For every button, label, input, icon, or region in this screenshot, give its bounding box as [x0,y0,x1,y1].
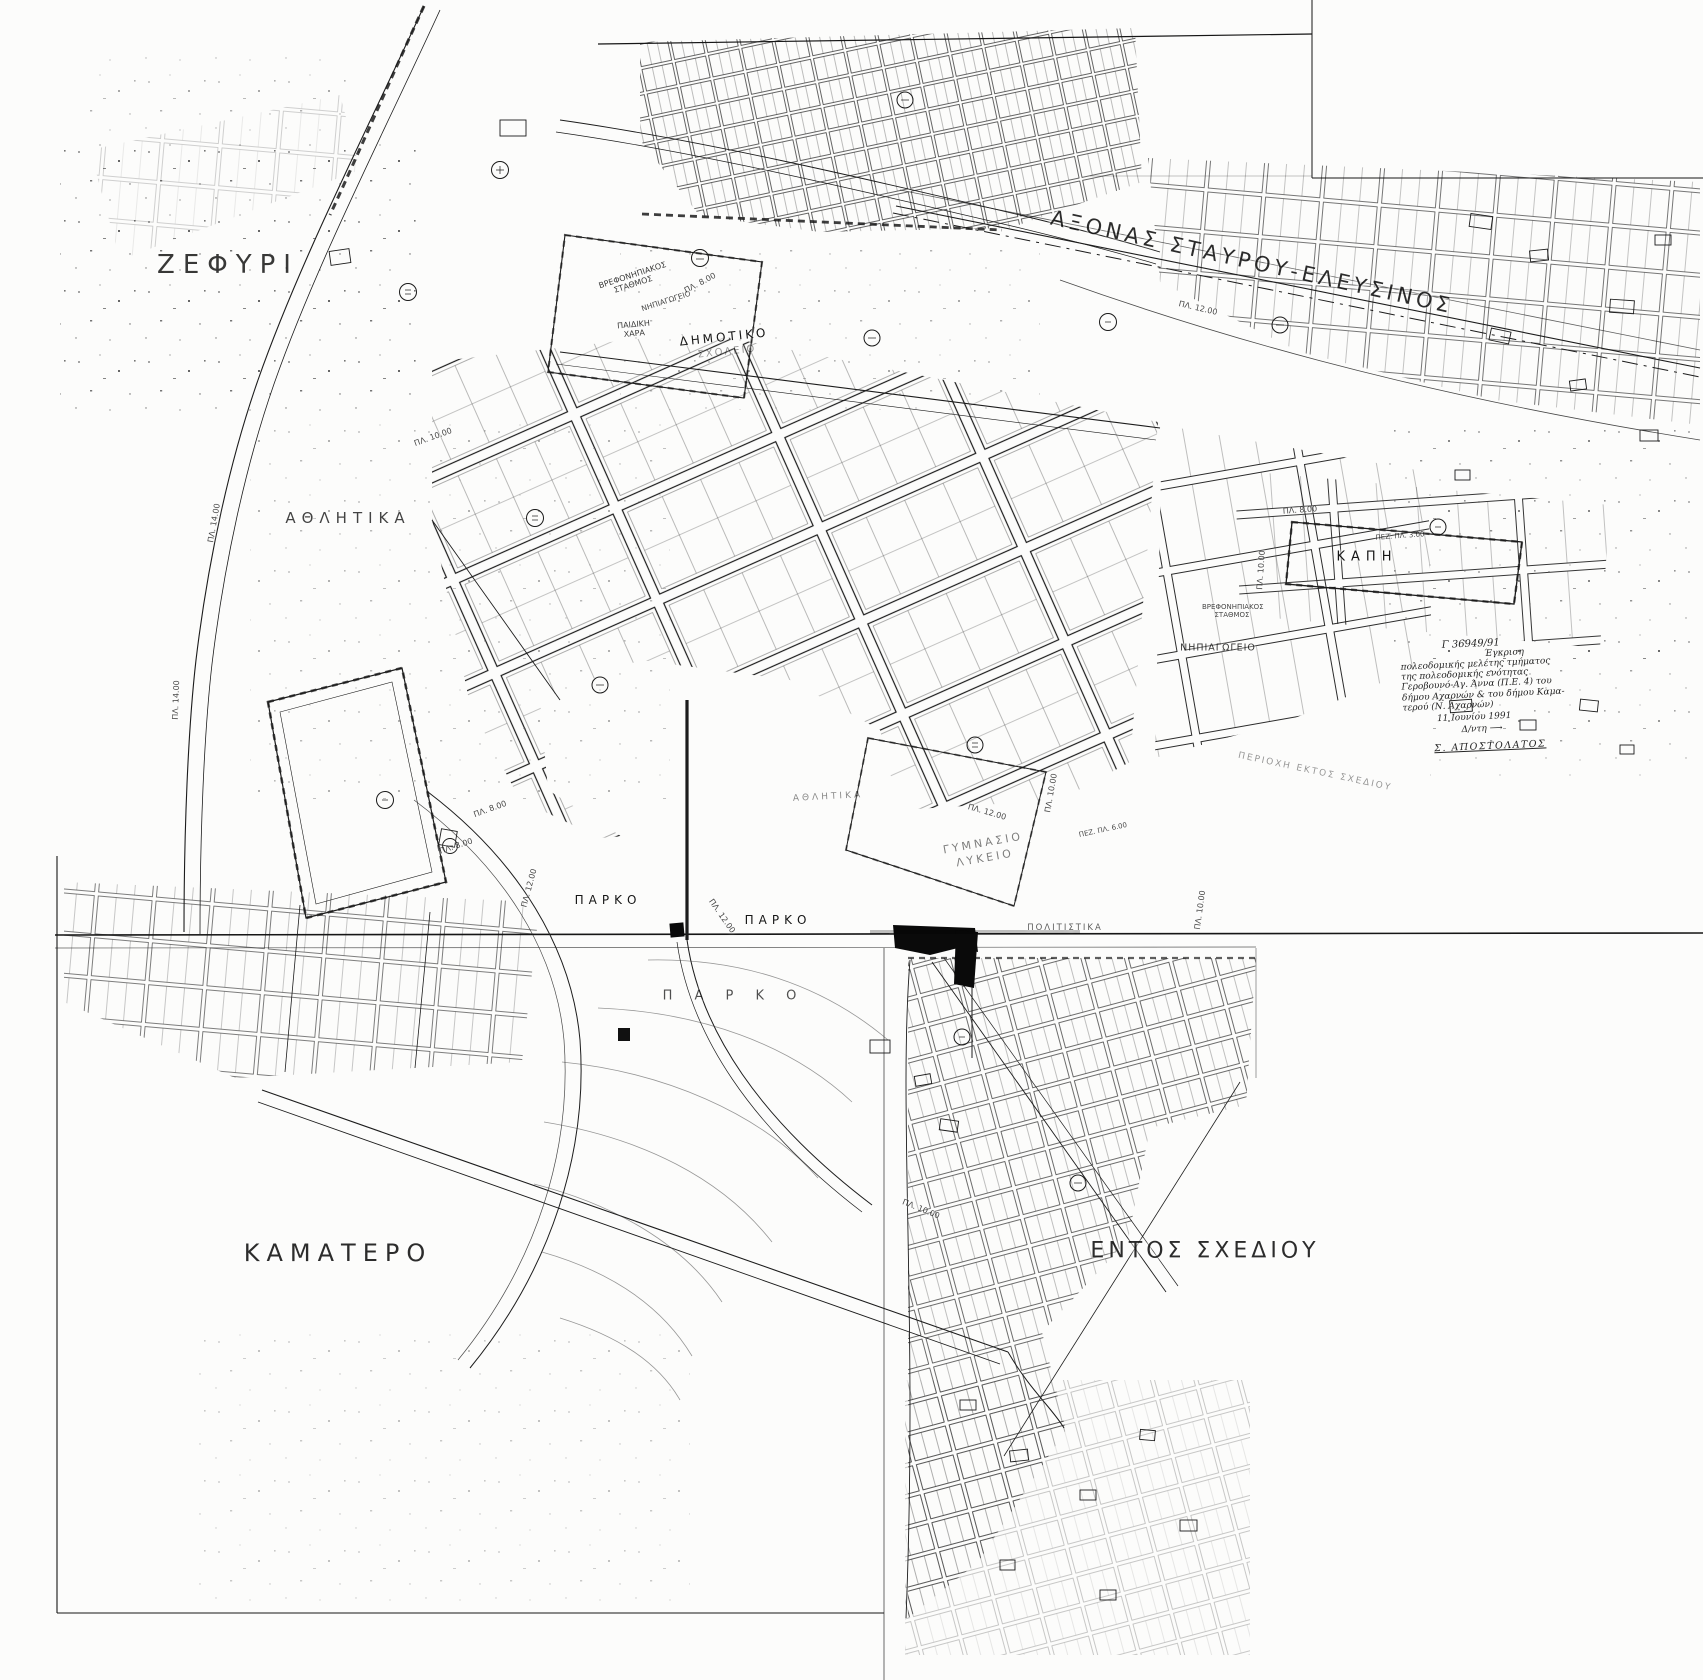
park-label-2: ΠΑΡΚΟ [745,913,812,927]
park-label-1: ΠΑΡΚΟ [575,893,642,907]
region-label-kamatero: ΚΑΜΑΤΕΡΟ [244,1239,432,1267]
approval-annotation: Γ 36949/91 Έγκριση πολεοδομικής μελέτης … [1400,634,1573,756]
facility-label-nipiagogeio-2: ΝΗΠΙΑΓΩΓΕΙΟ [1180,643,1256,654]
zone-label-entos-schediou: ΕΝΤΟΣ ΣΧΕΔΙΟΥ [1090,1239,1319,1264]
parcel-regions [60,28,1700,1655]
region-label-zefyri: ΖΕΦΥΡΙ [157,250,299,280]
area-label-athlitika: ΑΘΛΗΤΙΚΑ [285,509,410,527]
facility-label-politistika: ΠΟΛΙΤΙΣΤΙΚΑ [1027,923,1103,933]
scanned-map-sheet: ΖΕΦΥΡΙ ΑΞΟΝΑΣ ΣΤΑΥΡΟΥ-ΕΛΕΥΣΙΝΟΣ ΑΘΛΗΤΙΚΑ… [0,0,1703,1680]
road-width-label-15: ΠΛ. 14.00 [171,680,181,720]
facility-label-vrefonipiakos-stathmos-2: ΒΡΕΦΟΝΗΠΙΑΚΟΣ ΣΤΑΘΜΟΣ [1202,604,1262,620]
facility-label-kapi: ΚΑΠΗ [1337,550,1398,565]
park-label-3: Π Α Ρ Κ Ο [663,989,806,1004]
